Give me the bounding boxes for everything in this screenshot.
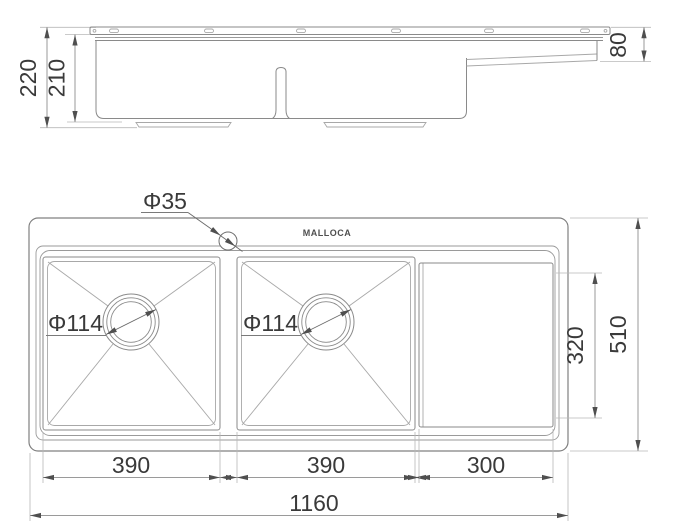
sink-technical-drawing: 220 210 80 Φ114: [0, 0, 675, 531]
rim-inner-line-1: [36, 246, 559, 440]
rail-end-hole-right: [604, 29, 607, 32]
clip-slot: [392, 29, 401, 33]
bowl-right: Φ114: [237, 257, 415, 430]
bowl-foot-pad-left: [136, 123, 231, 128]
bowl-foot-pad-right: [324, 123, 426, 128]
bowl-divider-profile: [273, 68, 290, 119]
mounting-rail: [90, 27, 610, 41]
bowl-left-outer: [43, 257, 220, 430]
drainboard-underside-line: [467, 61, 598, 67]
clip-slot: [581, 29, 590, 33]
drain-right-diameter-arrow: [301, 310, 351, 335]
side-elevation-view: 220 210 80: [15, 27, 651, 128]
bowl-profile-outline: [96, 41, 467, 119]
dim-label-overall-width: 1160: [289, 490, 338, 516]
clip-slot: [205, 29, 214, 33]
side-dimensions: 220 210 80: [15, 27, 644, 127]
drainboard-underside-line: [467, 54, 598, 60]
dim-label-bowl-right-width: 390: [307, 452, 345, 478]
dim-label-overall-depth: 220: [15, 59, 41, 97]
bowl-left-inner: [48, 262, 216, 426]
rail-end-hole-left: [93, 29, 96, 32]
plan-view: Φ114 Φ114 Φ35: [29, 188, 648, 521]
bowl-right-outer: [237, 257, 415, 430]
dim-label-ledge-depth: 80: [605, 32, 631, 58]
drain-left-diameter-arrow: [106, 310, 156, 335]
side-extension-lines: [40, 27, 651, 127]
drainboard: [419, 263, 553, 427]
dim-label-drainboard-width: 300: [467, 452, 505, 478]
dim-label-drainboard-length: 320: [562, 326, 588, 364]
bowl-left: Φ114: [43, 257, 220, 430]
drainboard-outline: [419, 263, 553, 427]
sink-profile: [96, 41, 597, 128]
brand-label: MALLOCA: [303, 228, 352, 238]
dim-label-faucet-hole: Φ35: [143, 188, 187, 214]
faucet-hole-callout: Φ35: [141, 188, 243, 252]
dim-label-bowl-left-width: 390: [112, 452, 150, 478]
plan-right-dimensions: 320 510: [556, 218, 648, 451]
plan-bottom-dimensions: 390 390 300 1160: [30, 429, 568, 521]
rim-inner-line-2: [40, 251, 555, 436]
dim-label-overall-length: 510: [605, 315, 631, 353]
clip-slot: [110, 29, 119, 33]
drawing-svg: 220 210 80 Φ114: [0, 0, 675, 531]
dim-label-drain-right: Φ114: [243, 310, 298, 336]
clip-slot: [485, 29, 494, 33]
dim-label-bowl-depth: 210: [44, 59, 70, 97]
bowl-right-inner: [242, 262, 411, 426]
clip-slot: [297, 29, 306, 33]
dim-label-drain-left: Φ114: [48, 310, 103, 336]
